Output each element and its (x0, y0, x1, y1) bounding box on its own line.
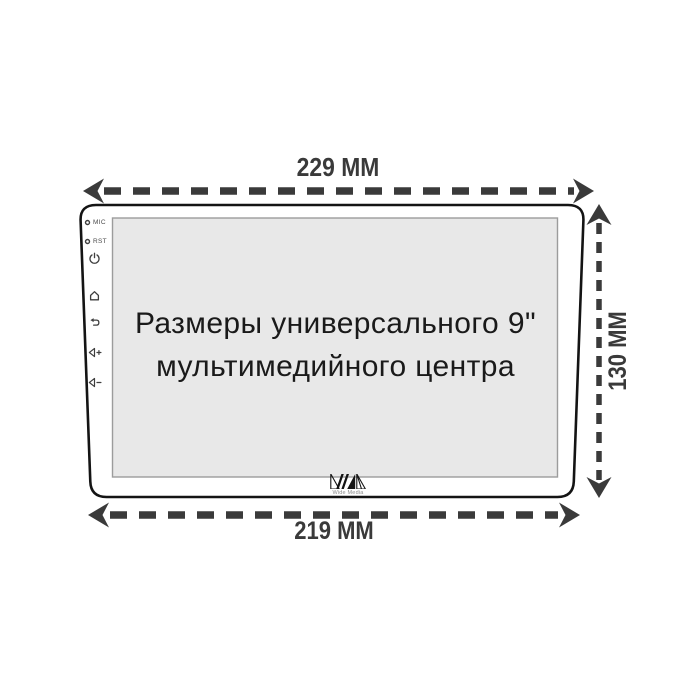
arrowhead-right (559, 503, 580, 528)
screen-caption: Размеры универсального 9" мультимедийног… (113, 302, 558, 388)
rst-row: RST (84, 238, 107, 245)
brand-logo-mark (330, 474, 366, 489)
brand-logo-text: Wide Media (332, 490, 363, 496)
dimension-diagram: 229 ММ 130 ММ 219 ММ Размеры универсальн… (0, 0, 700, 700)
volume-up-icon (87, 346, 102, 359)
arrowhead-down (587, 477, 612, 498)
dimension-label-right: 130 ММ (604, 263, 630, 439)
arrowhead-up (587, 204, 612, 225)
arrowhead-left (88, 503, 109, 528)
arrowhead-left (83, 179, 104, 204)
dimension-label-bottom: 219 ММ (246, 517, 422, 546)
mic-hole-icon (84, 219, 91, 226)
mic-label: MIC (93, 219, 106, 226)
mic-row: MIC (84, 219, 106, 226)
brand-logo: Wide Media (316, 474, 380, 496)
screen-caption-line1: Размеры универсального 9" (113, 302, 558, 345)
power-icon (88, 252, 101, 265)
volume-down-icon (87, 376, 102, 389)
rst-hole-icon (84, 238, 91, 245)
arrowhead-right (573, 179, 594, 204)
home-icon (88, 289, 101, 302)
dimension-label-top: 229 ММ (250, 152, 426, 183)
back-icon (88, 316, 101, 329)
rst-label: RST (93, 238, 107, 245)
screen-caption-line2: мультимедийного центра (113, 345, 558, 388)
